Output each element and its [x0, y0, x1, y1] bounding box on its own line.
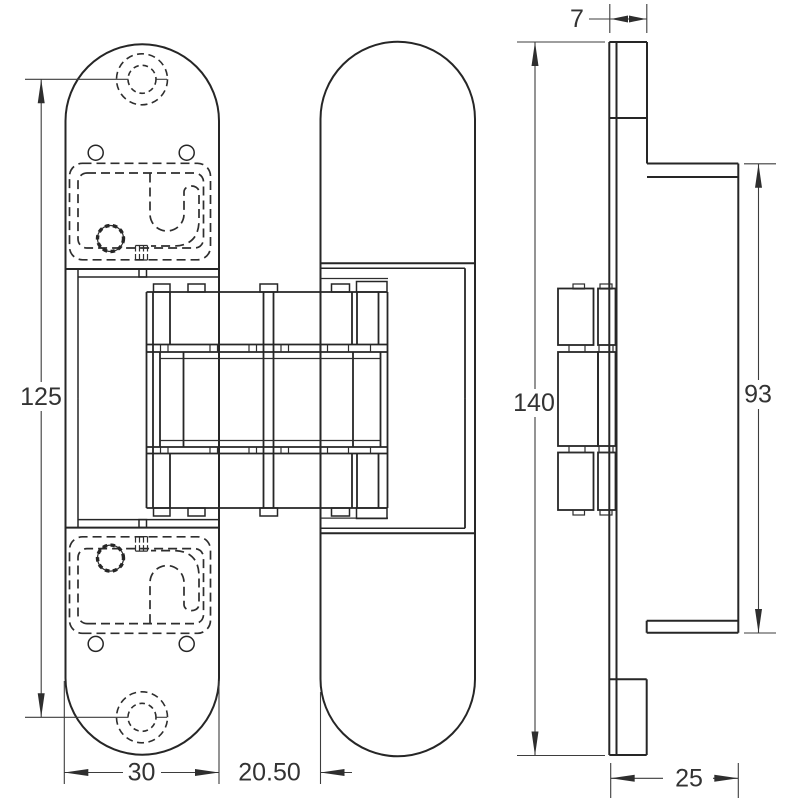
dim-label-25: 25	[675, 765, 703, 793]
knuckle-middle	[558, 352, 598, 446]
arrowhead-up	[38, 79, 45, 103]
knuckle-top	[558, 289, 594, 346]
dim-label-30: 30	[128, 759, 156, 787]
leaf-detail-top	[25, 54, 475, 399]
mechanism-verticals	[147, 292, 388, 508]
dim-label-125: 125	[20, 383, 62, 411]
arrowhead-left	[321, 769, 345, 776]
knuckle-bottom	[558, 453, 594, 511]
arrowhead-up	[532, 42, 539, 66]
dim-plate-thickness-7: 7	[570, 4, 647, 33]
mechanism-clip-row-bottom	[161, 447, 371, 454]
arrowhead-right	[629, 16, 646, 23]
mechanism-tabs-bottom	[154, 508, 388, 519]
hinge-technical-drawing-page: 125 30 20.50 140 93 7	[0, 0, 800, 800]
mounting-hole-bore	[128, 65, 156, 93]
arrowhead-down	[532, 732, 539, 756]
knuckle-middle-inner	[598, 352, 616, 446]
arrowhead-left	[611, 775, 635, 782]
hinge-technical-drawing: 125 30 20.50 140 93 7	[0, 0, 800, 800]
dim-label-140: 140	[513, 389, 555, 417]
knuckle-bottom-inner	[598, 453, 616, 511]
mechanism-clip-row-top	[161, 345, 371, 353]
mechanism-link-edges	[160, 359, 381, 441]
screw-hole-left	[88, 145, 103, 160]
knuckle-clip-1	[569, 345, 585, 352]
dim-flange-height-93: 93	[744, 164, 776, 633]
dim-leaf-gap-20-50: 20.50	[238, 692, 352, 787]
knuckle-clip-4	[599, 446, 613, 453]
arrowhead-right	[714, 775, 738, 782]
dim-label-7: 7	[570, 5, 584, 33]
left-leaf-neck-tab	[139, 269, 147, 277]
hinge-mechanism	[147, 282, 388, 519]
dim-side-depth-25: 25	[611, 763, 739, 798]
dim-overall-height-140: 140	[513, 42, 605, 756]
side-plate-profile	[609, 42, 738, 755]
arrowhead-left	[611, 16, 628, 23]
arrowhead-right	[195, 769, 219, 776]
screw-hole-right	[179, 145, 194, 160]
arrowhead-down	[755, 609, 762, 633]
front-view	[25, 42, 475, 757]
arrowhead-left	[64, 769, 88, 776]
dim-label-20-50: 20.50	[238, 759, 301, 787]
arrowhead-up	[755, 164, 762, 188]
right-leaf-outline	[321, 42, 476, 757]
dim-label-93: 93	[744, 381, 772, 409]
knuckle-clip-3	[569, 446, 585, 453]
knuckle-clip-2	[599, 345, 613, 352]
side-knuckles	[558, 284, 616, 515]
mechanism-tabs-top	[154, 282, 388, 293]
adjustment-slot	[150, 174, 199, 247]
side-view	[558, 42, 738, 755]
leaf-detail-bottom	[25, 398, 475, 743]
knuckle-top-inner	[598, 289, 616, 346]
arrowhead-down	[38, 693, 45, 717]
dim-hole-spacing-125: 125	[20, 79, 62, 717]
